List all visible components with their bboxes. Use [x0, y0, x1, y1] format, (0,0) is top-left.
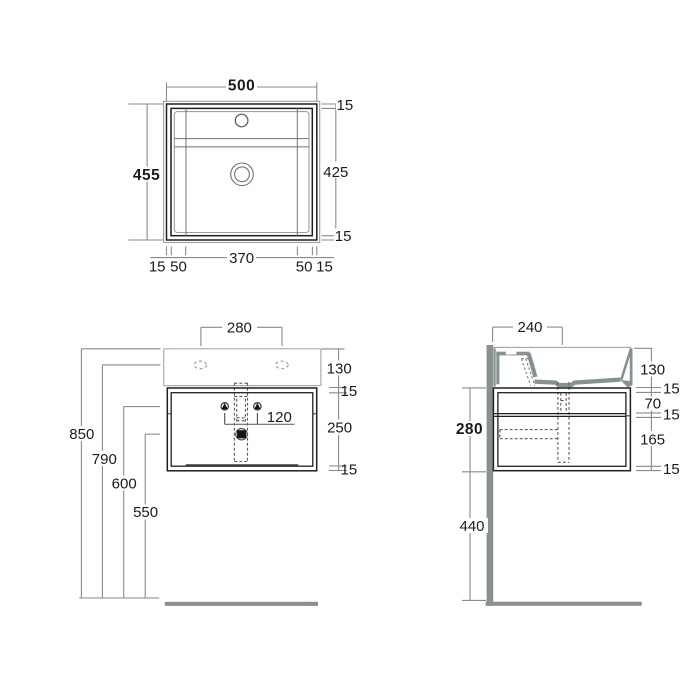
svg-text:850: 850	[69, 426, 94, 443]
svg-text:280: 280	[456, 421, 483, 438]
svg-text:600: 600	[112, 475, 137, 492]
svg-text:550: 550	[133, 504, 158, 521]
svg-text:15: 15	[335, 228, 352, 245]
svg-text:15: 15	[337, 97, 354, 114]
svg-text:15: 15	[341, 462, 358, 479]
svg-text:440: 440	[459, 518, 484, 535]
svg-text:15: 15	[663, 381, 680, 398]
svg-text:370: 370	[229, 250, 254, 267]
svg-text:250: 250	[327, 420, 352, 437]
svg-text:70: 70	[644, 396, 661, 413]
svg-text:455: 455	[133, 167, 160, 184]
svg-text:500: 500	[228, 78, 255, 95]
svg-text:15: 15	[663, 461, 680, 478]
svg-text:120: 120	[267, 409, 292, 426]
svg-text:50: 50	[296, 258, 313, 275]
svg-text:130: 130	[640, 362, 665, 379]
svg-text:425: 425	[323, 164, 348, 181]
svg-text:15: 15	[316, 258, 333, 275]
svg-text:790: 790	[92, 451, 117, 468]
svg-text:165: 165	[640, 431, 665, 448]
svg-text:15: 15	[341, 383, 358, 400]
svg-text:280: 280	[227, 319, 252, 336]
svg-text:15: 15	[663, 407, 680, 424]
svg-text:50: 50	[170, 258, 187, 275]
svg-text:240: 240	[517, 319, 542, 336]
svg-text:15: 15	[149, 258, 166, 275]
svg-text:130: 130	[327, 361, 352, 378]
